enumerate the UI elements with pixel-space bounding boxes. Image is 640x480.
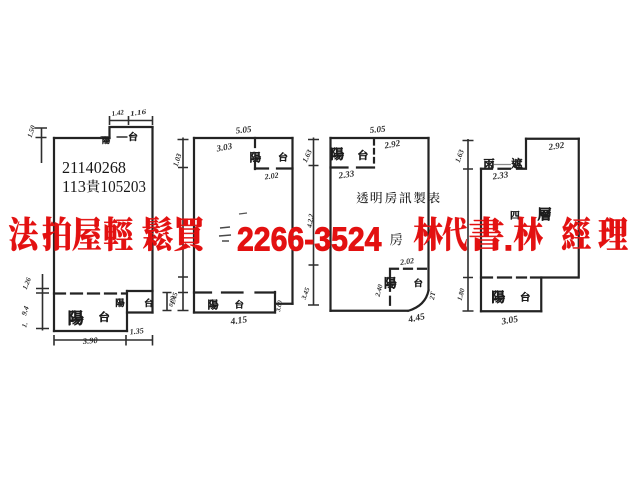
svg-text:1.42: 1.42 xyxy=(111,108,125,118)
svg-text:1.26: 1.26 xyxy=(21,276,33,291)
svg-text:3.60: 3.60 xyxy=(275,299,284,313)
svg-text:105203: 105203 xyxy=(101,177,147,196)
svg-text:2.40: 2.40 xyxy=(373,283,384,298)
svg-text:2.92: 2.92 xyxy=(547,140,565,152)
svg-text:1.63: 1.63 xyxy=(300,148,314,164)
svg-text:1.63: 1.63 xyxy=(453,148,466,164)
svg-text:2.02: 2.02 xyxy=(399,256,415,267)
svg-text:3.90: 3.90 xyxy=(81,335,98,346)
svg-text:2.92: 2.92 xyxy=(383,138,402,151)
svg-text:21140268: 21140268 xyxy=(62,158,126,177)
svg-text:1.16: 1.16 xyxy=(130,108,148,118)
svg-text:3.05: 3.05 xyxy=(500,315,519,328)
svg-text:3.03: 3.03 xyxy=(215,141,234,154)
svg-text:4.45: 4.45 xyxy=(407,312,427,325)
svg-text:5.05: 5.05 xyxy=(369,124,386,135)
svg-text:1.: 1. xyxy=(20,321,29,329)
svg-text:2.02: 2.02 xyxy=(263,171,279,182)
svg-text:2T: 2T xyxy=(428,291,438,302)
svg-text:9.4: 9.4 xyxy=(19,305,31,317)
svg-text:2.33: 2.33 xyxy=(337,168,355,180)
svg-text:1.80: 1.80 xyxy=(456,287,467,301)
svg-text:2266-3524: 2266-3524 xyxy=(237,222,382,259)
svg-text:1.35: 1.35 xyxy=(129,326,144,336)
svg-text:1.03: 1.03 xyxy=(171,152,184,168)
svg-text:1.50: 1.50 xyxy=(26,124,38,139)
svg-text:113: 113 xyxy=(62,177,86,196)
svg-text:3.45: 3.45 xyxy=(300,286,312,302)
svg-text:4.15: 4.15 xyxy=(229,315,248,327)
svg-text:5.05: 5.05 xyxy=(235,124,252,136)
svg-text:2.33: 2.33 xyxy=(491,169,509,181)
